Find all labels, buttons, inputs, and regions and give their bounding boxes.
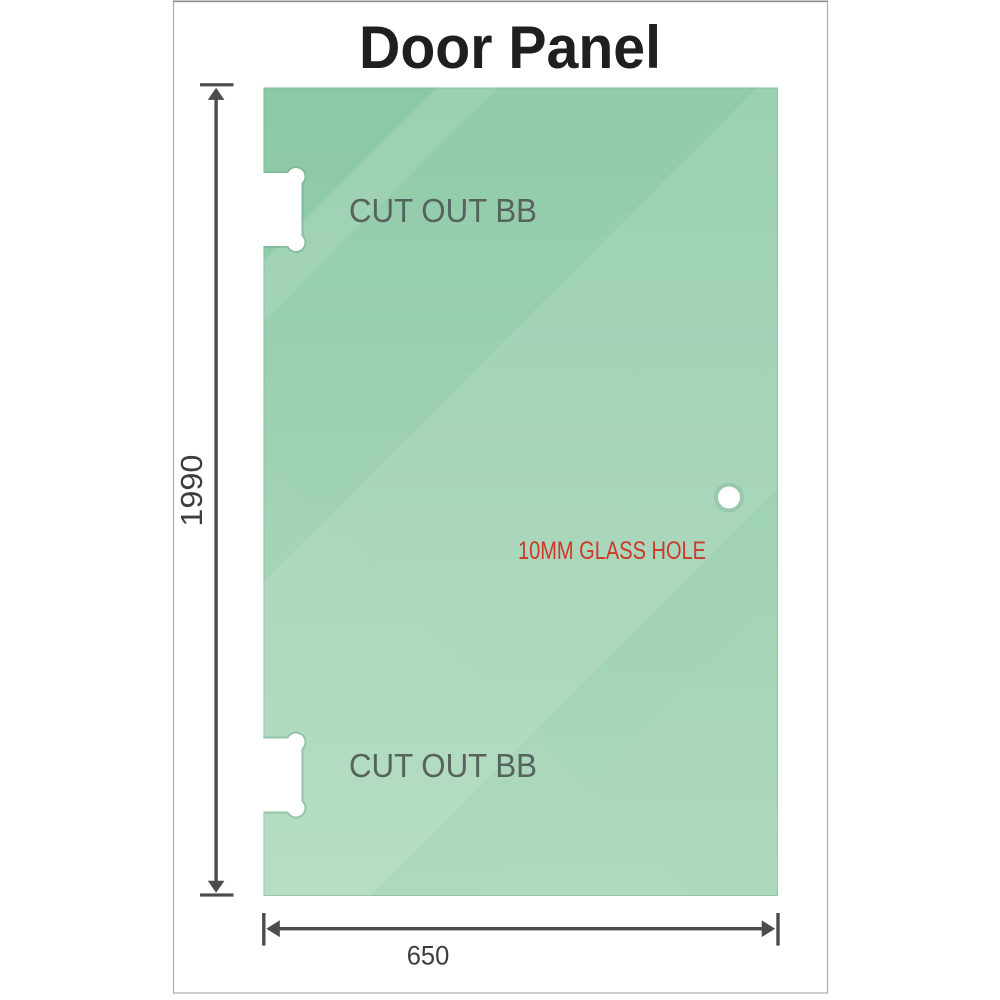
svg-text:650: 650: [407, 941, 450, 971]
svg-text:1990: 1990: [174, 455, 209, 527]
svg-text:10MM GLASS HOLE: 10MM GLASS HOLE: [518, 537, 706, 565]
svg-text:CUT OUT BB: CUT OUT BB: [349, 748, 537, 785]
svg-text:CUT OUT BB: CUT OUT BB: [349, 193, 537, 230]
svg-text:Door Panel: Door Panel: [359, 13, 661, 81]
